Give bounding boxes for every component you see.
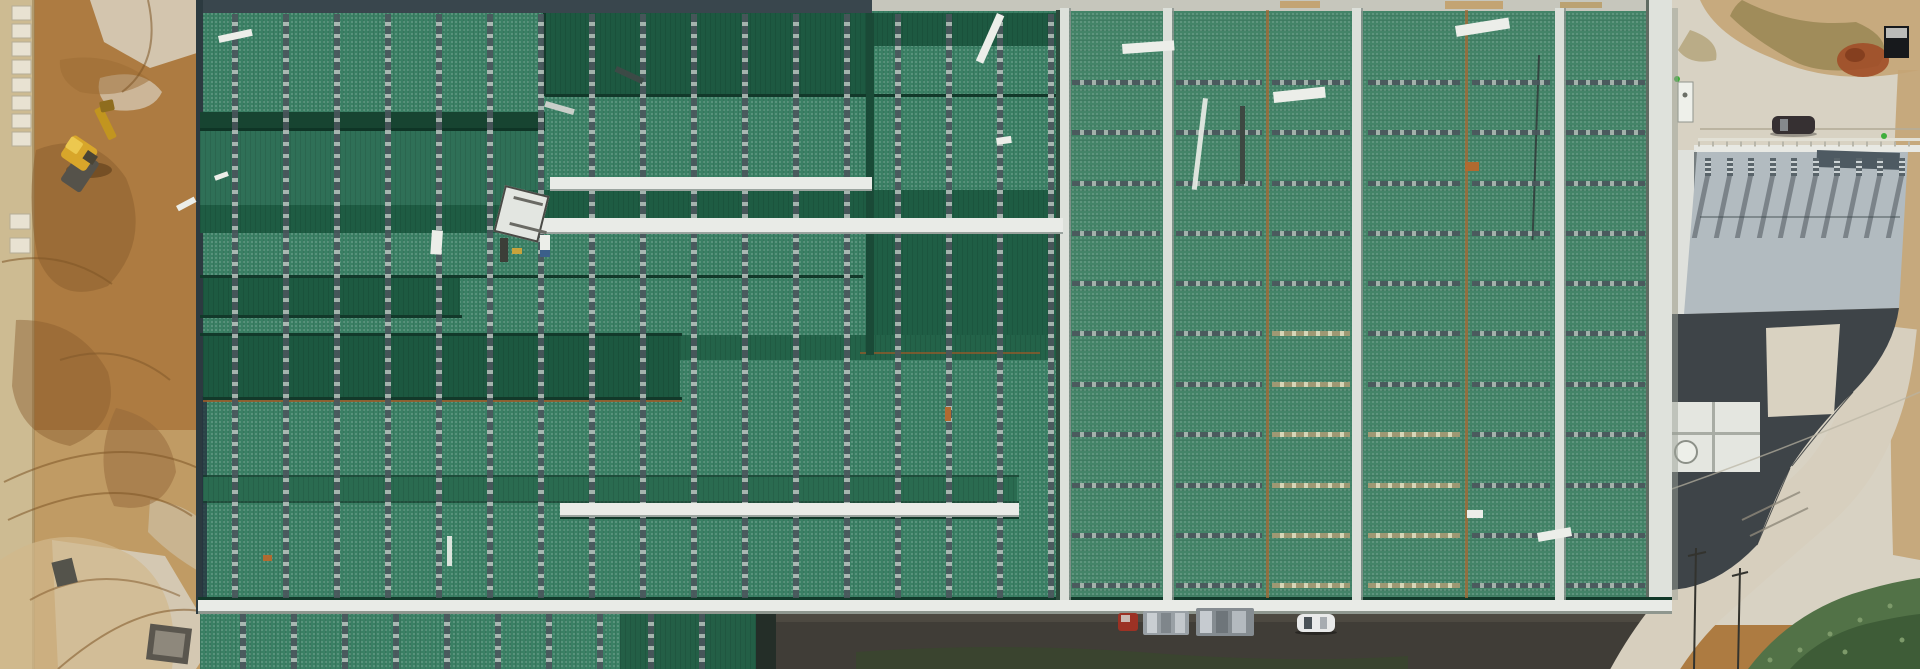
ground-and-yard — [1672, 432, 1760, 435]
skylight-row — [1176, 80, 1262, 85]
ground-and-yard — [12, 132, 31, 146]
skylight-row — [1072, 432, 1160, 437]
roof-vent — [1834, 158, 1840, 176]
skylight-strip — [546, 614, 552, 669]
ground-and-yard — [1766, 324, 1840, 417]
platform-leg — [500, 238, 508, 262]
skylight-row — [1272, 533, 1350, 538]
ground-and-yard — [1678, 82, 1693, 122]
suv — [1772, 116, 1815, 134]
mid-roof-panel — [200, 130, 545, 207]
ground-and-yard — [1828, 632, 1833, 637]
platform-marker — [512, 248, 522, 254]
roof-extension-dark-panel — [620, 612, 760, 669]
debris-plank — [1240, 106, 1245, 184]
rust-patch — [263, 555, 272, 561]
skylight-row — [1566, 130, 1645, 135]
skylight-row — [1566, 432, 1645, 437]
skylight-row — [1176, 130, 1262, 135]
roof-left-edge — [202, 396, 207, 612]
car — [1297, 614, 1335, 632]
ridge-shadow — [1361, 8, 1363, 600]
dark-roof-panel — [200, 205, 510, 233]
debris-plank — [430, 230, 443, 255]
ground-and-yard — [12, 60, 31, 74]
ground-and-yard — [12, 96, 31, 110]
skylight-strip — [334, 14, 340, 598]
roof-ridge-line — [200, 275, 863, 278]
pallet — [1232, 611, 1246, 633]
roof-vent — [1727, 158, 1733, 176]
skylight-row — [1272, 281, 1350, 286]
extension-edge-shadow — [756, 612, 776, 669]
skylight-strip — [385, 14, 391, 598]
gutter-dirt — [1280, 1, 1320, 8]
ground-and-yard — [1683, 93, 1688, 98]
roof-top-gutter — [872, 0, 1672, 11]
roof-vent — [1899, 158, 1905, 176]
roof-vent — [1748, 158, 1754, 176]
skylight-row — [1472, 483, 1550, 488]
ground-and-yard — [10, 238, 30, 253]
skylight-row — [1368, 331, 1460, 336]
ground-and-yard — [12, 24, 31, 38]
skylight-strip — [1048, 14, 1054, 598]
gutter-dirt — [1445, 1, 1503, 9]
roof-vent — [1705, 158, 1711, 176]
skylight-row — [1472, 80, 1550, 85]
skylight-row — [1566, 181, 1645, 186]
skylight-row — [1368, 533, 1460, 538]
skylight-strip — [597, 614, 603, 669]
skylight-strip — [436, 14, 442, 598]
ground-and-yard — [12, 42, 31, 56]
debris-plank — [1467, 510, 1483, 518]
ground-and-yard — [1768, 658, 1773, 663]
ridge-shadow — [1172, 8, 1174, 600]
roof-vent — [1856, 158, 1862, 176]
ground-and-yard — [12, 78, 31, 92]
skylight-row — [1472, 281, 1550, 286]
ground-and-yard — [10, 214, 30, 229]
ground-and-yard — [1698, 138, 1920, 141]
hanging-sign-blue — [540, 250, 550, 257]
skylight-row — [1072, 130, 1160, 135]
skylight-row — [1368, 231, 1460, 236]
skylight-row — [1272, 432, 1350, 437]
pallet — [1216, 611, 1228, 633]
skylight-row — [1272, 382, 1350, 387]
ridge-cap — [1555, 8, 1564, 600]
ridge-cap — [1060, 8, 1069, 600]
roof-ridge-line — [200, 315, 462, 318]
skylight-row — [1072, 181, 1160, 186]
skylight-row — [1368, 130, 1460, 135]
roof-vent — [1877, 158, 1883, 176]
roof-walkway — [508, 218, 1063, 232]
roof-walkway — [550, 177, 872, 189]
roof-right-eave-line — [1646, 0, 1649, 601]
roof-vent — [1813, 158, 1819, 176]
suv-windshield — [1780, 119, 1788, 131]
skylight-row — [1072, 80, 1160, 85]
ridge-cap — [1163, 8, 1172, 600]
skylight-row — [1368, 181, 1460, 186]
skylight-row — [1368, 583, 1460, 588]
ground-and-yard — [1900, 638, 1905, 643]
skylight-row — [1272, 483, 1350, 488]
roof-ridge-line — [545, 94, 1063, 97]
skylight-row — [1272, 181, 1350, 186]
skylight-row — [1272, 130, 1350, 135]
skylight-row — [1566, 80, 1645, 85]
skylight-row — [1472, 583, 1550, 588]
skylight-row — [1072, 483, 1160, 488]
ground-and-yard — [12, 114, 31, 128]
skylight-row — [1072, 281, 1160, 286]
walkway-shadow — [198, 611, 1672, 614]
ground-and-yard — [1843, 650, 1848, 655]
skylight-row — [1272, 583, 1350, 588]
pallet — [1175, 613, 1185, 633]
roof-ridge-line — [200, 128, 545, 131]
skylight-row — [1472, 382, 1550, 387]
skylight-row — [1368, 483, 1460, 488]
skylight-strip — [342, 614, 348, 669]
walkway-shadow — [508, 232, 1063, 234]
rust-seam-vertical — [1266, 10, 1269, 598]
skylight-row — [1368, 382, 1460, 387]
skylight-row — [1072, 231, 1160, 236]
walkway-shadow — [560, 515, 1019, 517]
skylight-row — [1176, 231, 1262, 236]
ground-and-yard — [12, 6, 31, 20]
gutter-dirt — [1560, 2, 1602, 8]
rust-seam — [203, 400, 682, 402]
ground-and-yard — [153, 630, 186, 657]
ridge-shadow — [1069, 8, 1071, 600]
skylight-strip — [648, 614, 654, 669]
ground-and-yard — [1881, 133, 1887, 139]
skylight-row — [1072, 331, 1160, 336]
skylight-strip — [495, 614, 501, 669]
skylight-row — [1566, 331, 1645, 336]
skylight-row — [1368, 80, 1460, 85]
ground-and-yard — [1712, 402, 1715, 472]
ground-and-yard — [1675, 441, 1697, 463]
roof-vent — [1791, 158, 1797, 176]
ground-and-yard — [1845, 48, 1865, 62]
skylight-strip — [699, 614, 705, 669]
roof-vent — [1770, 158, 1776, 176]
rust-patch — [1465, 162, 1479, 171]
ground-and-yard — [1886, 28, 1907, 38]
skylight-row — [1368, 281, 1460, 286]
roof-right-eave — [1648, 0, 1672, 601]
skylight-row — [1176, 533, 1262, 538]
ground-and-yard — [1798, 648, 1803, 653]
skylight-row — [1072, 583, 1160, 588]
skylight-row — [1472, 130, 1550, 135]
skylight-row — [1176, 432, 1262, 437]
skylight-row — [1472, 231, 1550, 236]
walkway-shadow — [550, 189, 872, 191]
car-windshield — [1304, 617, 1312, 629]
skylight-strip — [240, 614, 246, 669]
rust-patch — [945, 407, 951, 421]
roof-top-edge — [198, 0, 872, 13]
car-rear-window — [1320, 617, 1327, 629]
skylight-row — [1272, 231, 1350, 236]
dark-roof-panel — [203, 277, 460, 315]
skylight-row — [1072, 382, 1160, 387]
skylight-row — [1272, 331, 1350, 336]
skylight-row — [1176, 331, 1262, 336]
skylight-strip — [487, 14, 493, 598]
pallet — [1161, 613, 1171, 633]
ground-and-yard — [1888, 604, 1893, 609]
skylight-row — [1176, 281, 1262, 286]
ground-and-yard — [1858, 618, 1863, 623]
skylight-row — [1566, 382, 1645, 387]
pallet — [1147, 613, 1157, 633]
skylight-row — [1472, 432, 1550, 437]
skylight-strip — [393, 614, 399, 669]
skylight-row — [1566, 583, 1645, 588]
aerial-photo-construction-warehouse — [0, 0, 1920, 669]
ridge-cap — [1352, 8, 1361, 600]
skylight-row — [1176, 483, 1262, 488]
skylight-strip — [444, 614, 450, 669]
skylight-strip — [291, 614, 297, 669]
skylight-row — [1566, 533, 1645, 538]
skylight-row — [1566, 483, 1645, 488]
skylight-row — [1272, 80, 1350, 85]
debris-plank — [447, 536, 452, 566]
skylight-strip — [283, 14, 289, 598]
ground-and-yard — [1837, 43, 1889, 77]
ridge-shadow — [1564, 8, 1566, 600]
skylight-strip — [232, 14, 238, 598]
skylight-row — [1472, 331, 1550, 336]
skylight-strip — [538, 14, 544, 598]
skylight-row — [1072, 533, 1160, 538]
skylight-row — [1176, 382, 1262, 387]
skylight-row — [1472, 181, 1550, 186]
skylight-row — [1566, 231, 1645, 236]
skylight-row — [1566, 281, 1645, 286]
pallet — [1200, 611, 1212, 633]
skylight-row — [1368, 432, 1460, 437]
skylight-row — [1176, 181, 1262, 186]
skylight-row — [1176, 583, 1262, 588]
truck-cab-roof — [1121, 615, 1130, 622]
ground-and-yard — [1672, 8, 1678, 600]
